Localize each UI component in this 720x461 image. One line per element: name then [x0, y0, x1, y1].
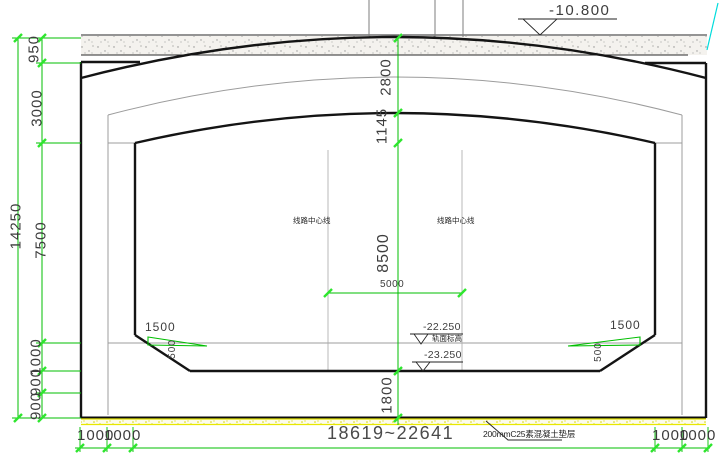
dim-center-1145: 1145 [375, 108, 390, 144]
tunnel-inner-lining [108, 77, 682, 415]
track-centerline-label-right: 线路中心线 [437, 217, 475, 225]
drawing-linework [0, 0, 720, 461]
dim-slope-left: 1500 [145, 321, 176, 333]
dim-chamfer-left: 500 [168, 339, 178, 359]
dim-left-950: 950 [27, 35, 42, 63]
elevation-markers [410, 19, 617, 371]
dim-center-8500: 8500 [376, 233, 392, 273]
dim-chamfer-right: 500 [594, 342, 604, 362]
dim-bottom-right-1000b: 1000 [679, 428, 716, 443]
dim-left-7500: 7500 [34, 221, 49, 258]
dim-center-1800: 1800 [380, 376, 395, 413]
cushion-note: 200mmC25素混凝土垫层 [483, 430, 575, 439]
dim-bottom-left-1000b: 1000 [104, 428, 141, 443]
guide-line [707, 3, 718, 50]
elevation-rail-caption: 轨面标高 [432, 335, 462, 343]
elevation-rail: -22.250 [423, 322, 461, 333]
dim-left-900b: 900 [29, 392, 44, 420]
dim-overall-height: 14250 [9, 203, 24, 250]
slope-triangles [148, 337, 640, 346]
elevation-invert: -23.250 [424, 350, 462, 361]
dimension-lines [12, 34, 712, 452]
elevation-ground: -10.800 [549, 3, 610, 18]
dim-left-3000: 3000 [30, 89, 45, 126]
dim-bottom-span: 18619~22641 [327, 424, 454, 442]
dim-track-spacing: 5000 [380, 280, 404, 290]
track-centerline-label-left: 线路中心线 [293, 217, 331, 225]
dim-slope-right: 1500 [610, 319, 641, 331]
dim-center-2800: 2800 [379, 58, 394, 95]
surface-column [369, 0, 463, 37]
tunnel-cross-section-drawing: 14250 950 3000 7500 1000 900 900 2800 11… [0, 0, 720, 461]
inner-box [135, 113, 655, 371]
